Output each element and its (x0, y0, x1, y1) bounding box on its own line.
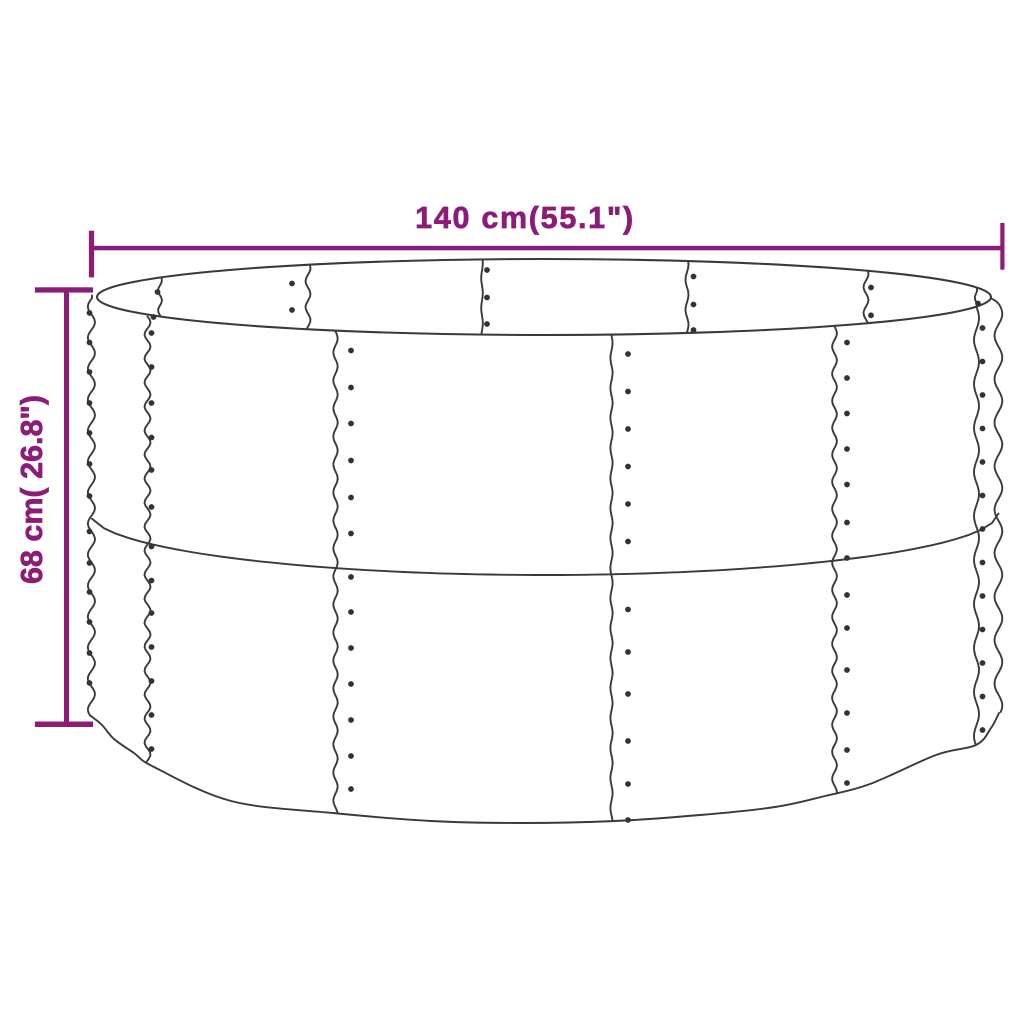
svg-text:68 cm( 26.8"): 68 cm( 26.8") (15, 395, 49, 584)
svg-text:140 cm(55.1"): 140 cm(55.1") (415, 201, 635, 235)
